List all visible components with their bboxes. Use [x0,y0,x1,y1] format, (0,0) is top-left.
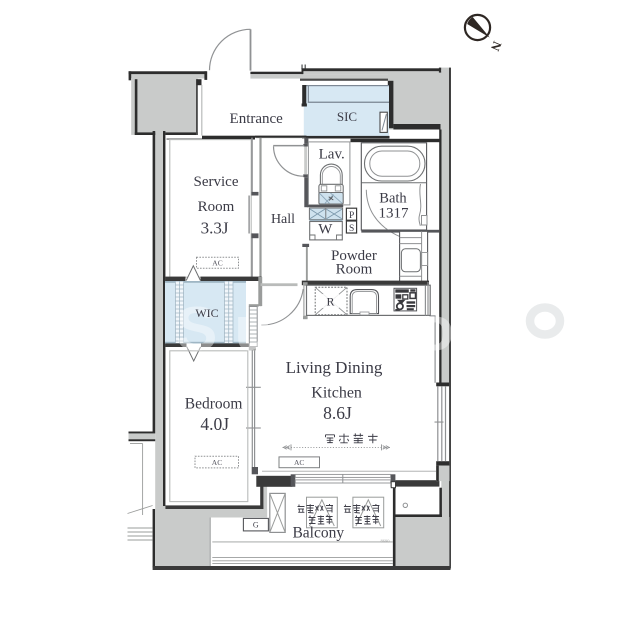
svg-text:Bath: Bath [379,191,407,207]
svg-text:W: W [318,222,333,238]
svg-text:Service: Service [194,174,239,190]
svg-text:WIC: WIC [195,306,218,320]
svg-text:G: G [253,521,259,530]
svg-text:4.0J: 4.0J [200,414,229,434]
svg-text:S: S [349,224,354,234]
svg-text:Room: Room [336,261,373,277]
svg-text:Kitchen: Kitchen [311,385,362,402]
svg-text:3.3J: 3.3J [201,219,229,238]
svg-text:N: N [488,39,504,53]
svg-text:Suumo: Suumo [176,295,471,364]
svg-text:8.6J: 8.6J [323,403,352,423]
svg-text:Lav.: Lav. [319,147,345,163]
svg-text:SIC: SIC [337,109,357,124]
svg-text:8690: 8690 [381,539,391,544]
svg-text:AC: AC [294,458,304,467]
svg-text:P: P [349,211,354,221]
svg-text:Balcony: Balcony [292,525,344,542]
svg-text:Hall: Hall [271,212,295,227]
svg-text:Bedroom: Bedroom [185,396,243,413]
svg-text:Room: Room [198,199,235,215]
svg-text:1317: 1317 [379,206,410,222]
svg-text:Entrance: Entrance [230,111,284,127]
svg-text:AC: AC [212,458,222,467]
svg-text:AC: AC [212,259,222,268]
